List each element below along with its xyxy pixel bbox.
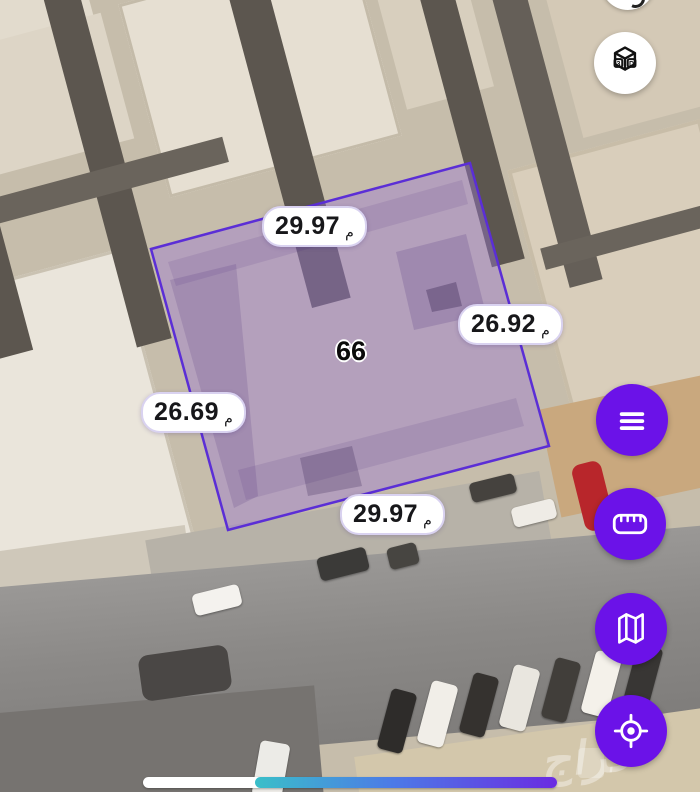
dimension-value: 26.92 <box>471 310 536 339</box>
dimension-value: 26.69 <box>154 398 219 427</box>
menu-button[interactable] <box>596 384 668 456</box>
measure-button[interactable] <box>594 488 666 560</box>
dimension-label-left: 26.69 م <box>141 392 246 433</box>
parcel-number: 66 <box>336 336 366 367</box>
dimension-unit: م <box>423 512 432 529</box>
dimension-unit: م <box>224 410 233 427</box>
dimension-unit: م <box>345 224 354 241</box>
dimension-label-top: 29.97 م <box>262 206 367 247</box>
progress-bar-fill <box>255 777 557 788</box>
svg-text:D: D <box>629 61 634 68</box>
map-icon <box>610 608 652 650</box>
locate-button[interactable] <box>595 695 667 767</box>
svg-text:3: 3 <box>616 61 620 68</box>
map-style-button[interactable] <box>595 593 667 665</box>
crosshair-locate-icon <box>610 710 652 752</box>
view-3d-button[interactable]: 3 D <box>594 32 656 94</box>
dimension-value: 29.97 <box>353 500 418 529</box>
cube-3d-icon: 3 D <box>603 41 647 85</box>
ruler-icon <box>609 503 651 545</box>
map-canvas[interactable]: 66 29.97 م 26.92 م 26.69 م 29.97 م 3 D <box>0 0 700 792</box>
dimension-unit: م <box>541 322 550 339</box>
dimension-label-bottom: 29.97 م <box>340 494 445 535</box>
dimension-value: 29.97 <box>275 212 340 241</box>
progress-bar <box>143 777 557 788</box>
hamburger-icon <box>612 400 652 440</box>
dimension-label-right: 26.92 م <box>458 304 563 345</box>
